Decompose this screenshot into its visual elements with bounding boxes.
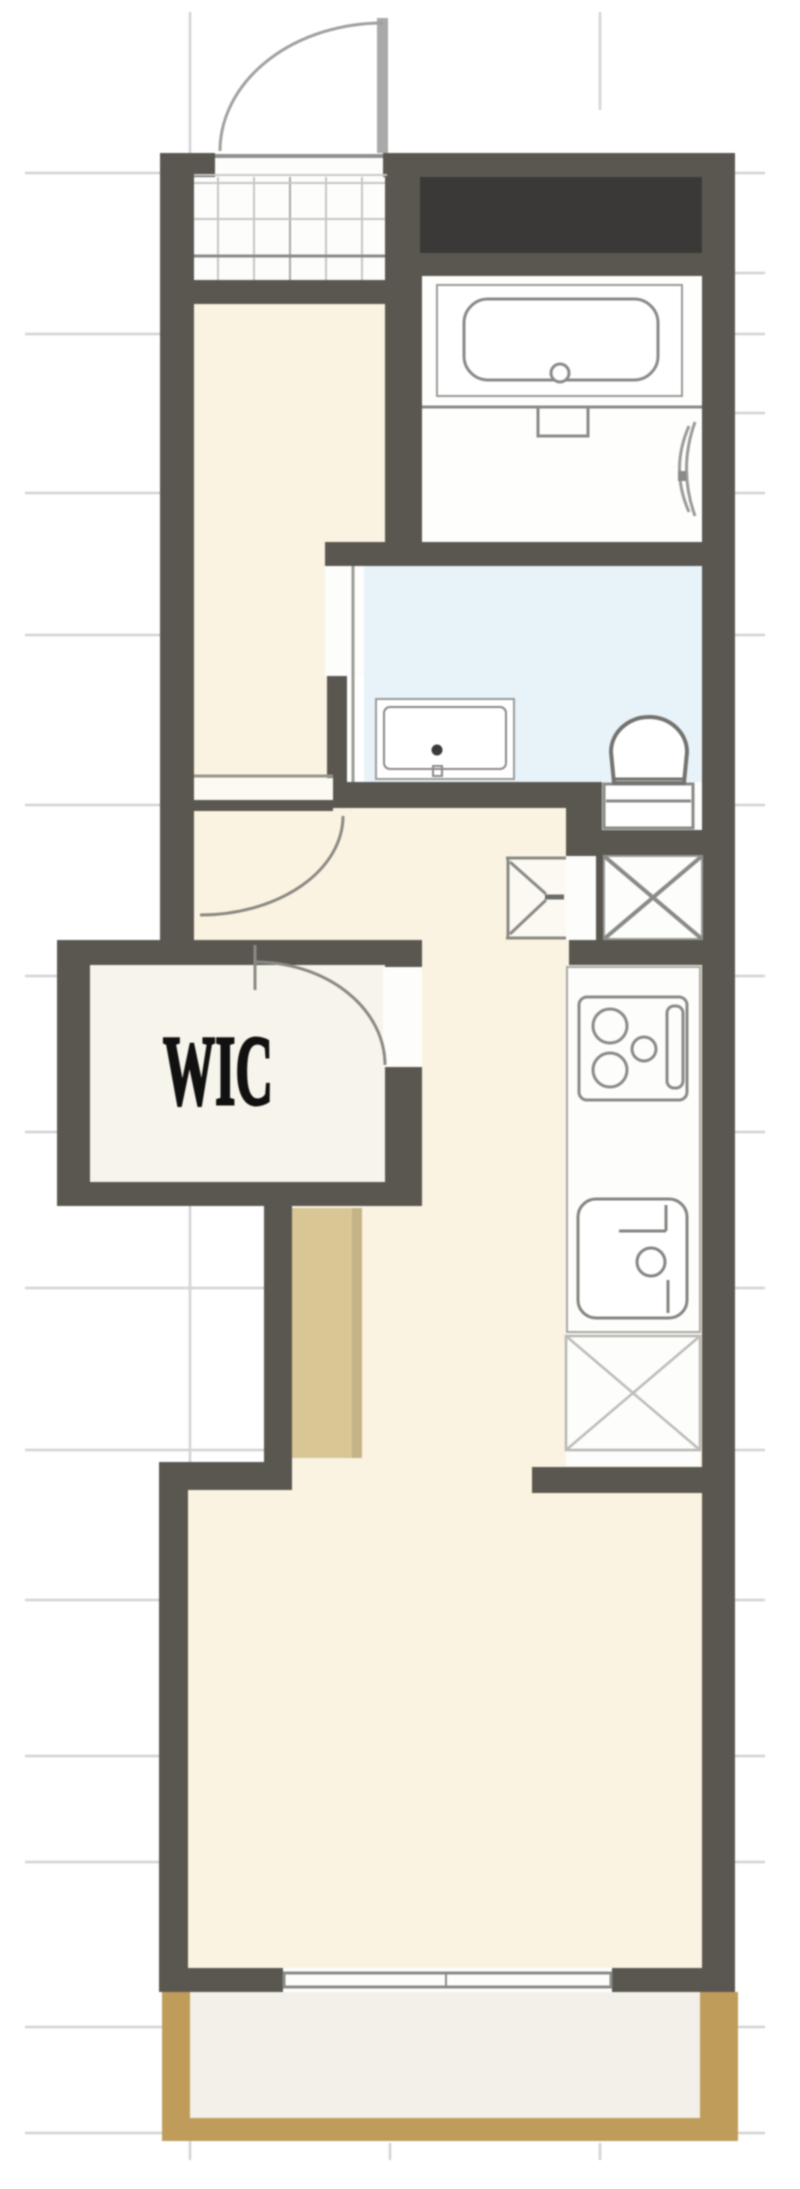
svg-text:WIC: WIC	[163, 1015, 273, 1126]
